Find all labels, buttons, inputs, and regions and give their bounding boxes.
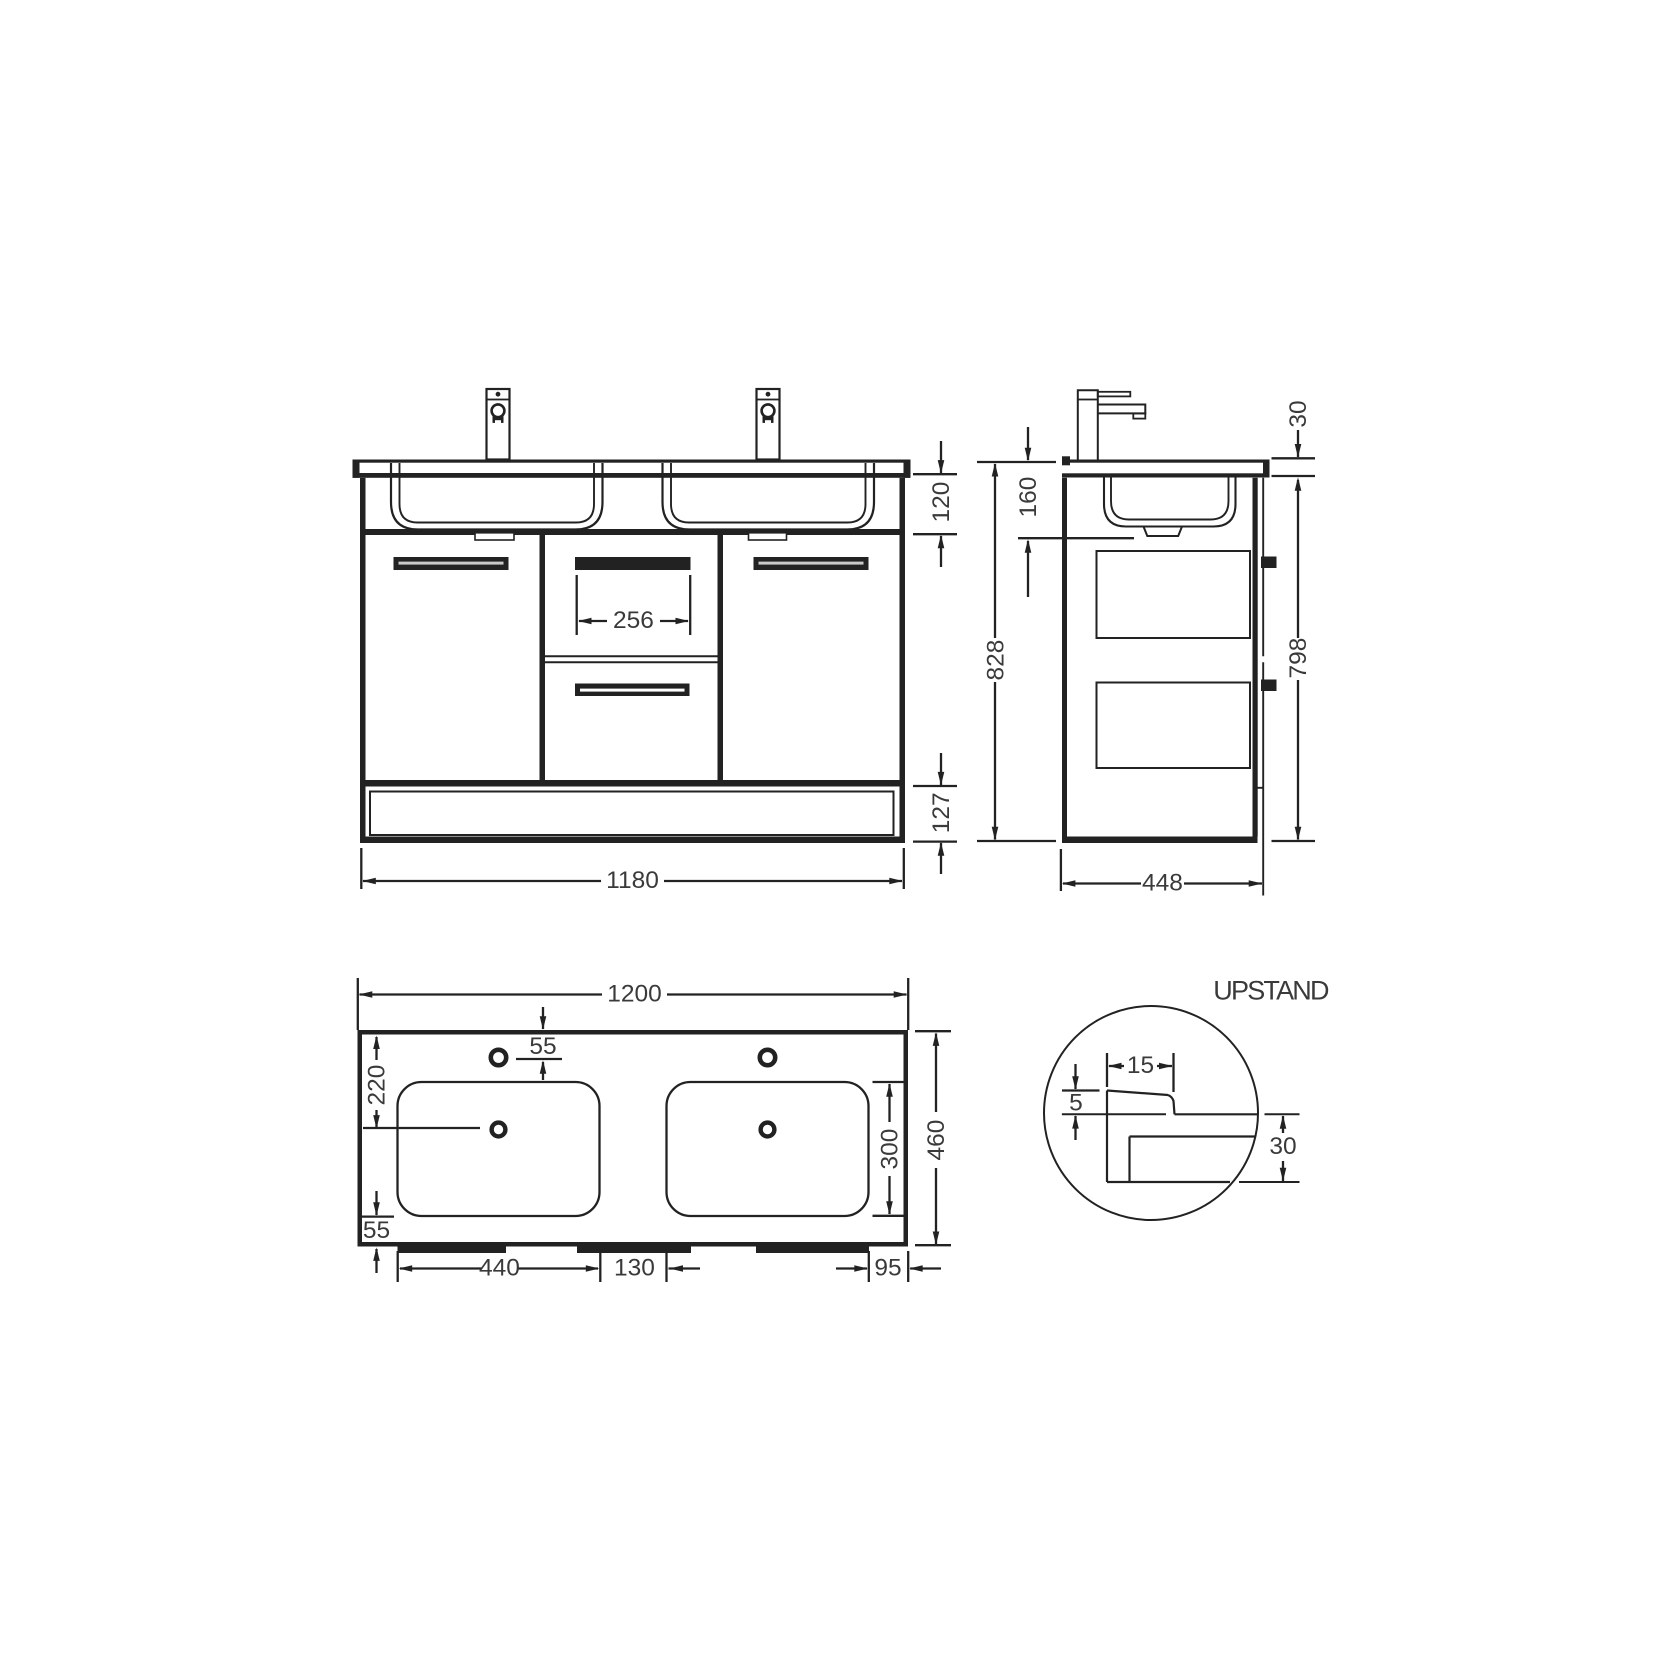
svg-text:55: 55 [363,1217,390,1244]
svg-text:440: 440 [479,1255,520,1282]
svg-text:15: 15 [1127,1052,1154,1079]
svg-text:460: 460 [923,1120,950,1161]
svg-text:220: 220 [364,1065,391,1106]
svg-text:120: 120 [928,482,955,523]
svg-text:1200: 1200 [607,981,662,1008]
svg-text:798: 798 [1285,638,1312,679]
svg-text:828: 828 [983,640,1010,681]
svg-text:30: 30 [1269,1133,1296,1160]
svg-text:448: 448 [1142,870,1183,897]
svg-text:30: 30 [1285,400,1312,427]
svg-text:55: 55 [529,1033,556,1060]
svg-text:UPSTAND: UPSTAND [1213,976,1329,1006]
svg-text:95: 95 [874,1255,901,1282]
svg-text:1180: 1180 [606,867,659,894]
svg-text:256: 256 [613,607,654,634]
svg-text:130: 130 [614,1255,655,1282]
svg-text:127: 127 [928,792,955,833]
svg-text:5: 5 [1069,1090,1083,1117]
svg-text:300: 300 [877,1129,904,1170]
svg-text:160: 160 [1015,477,1042,518]
